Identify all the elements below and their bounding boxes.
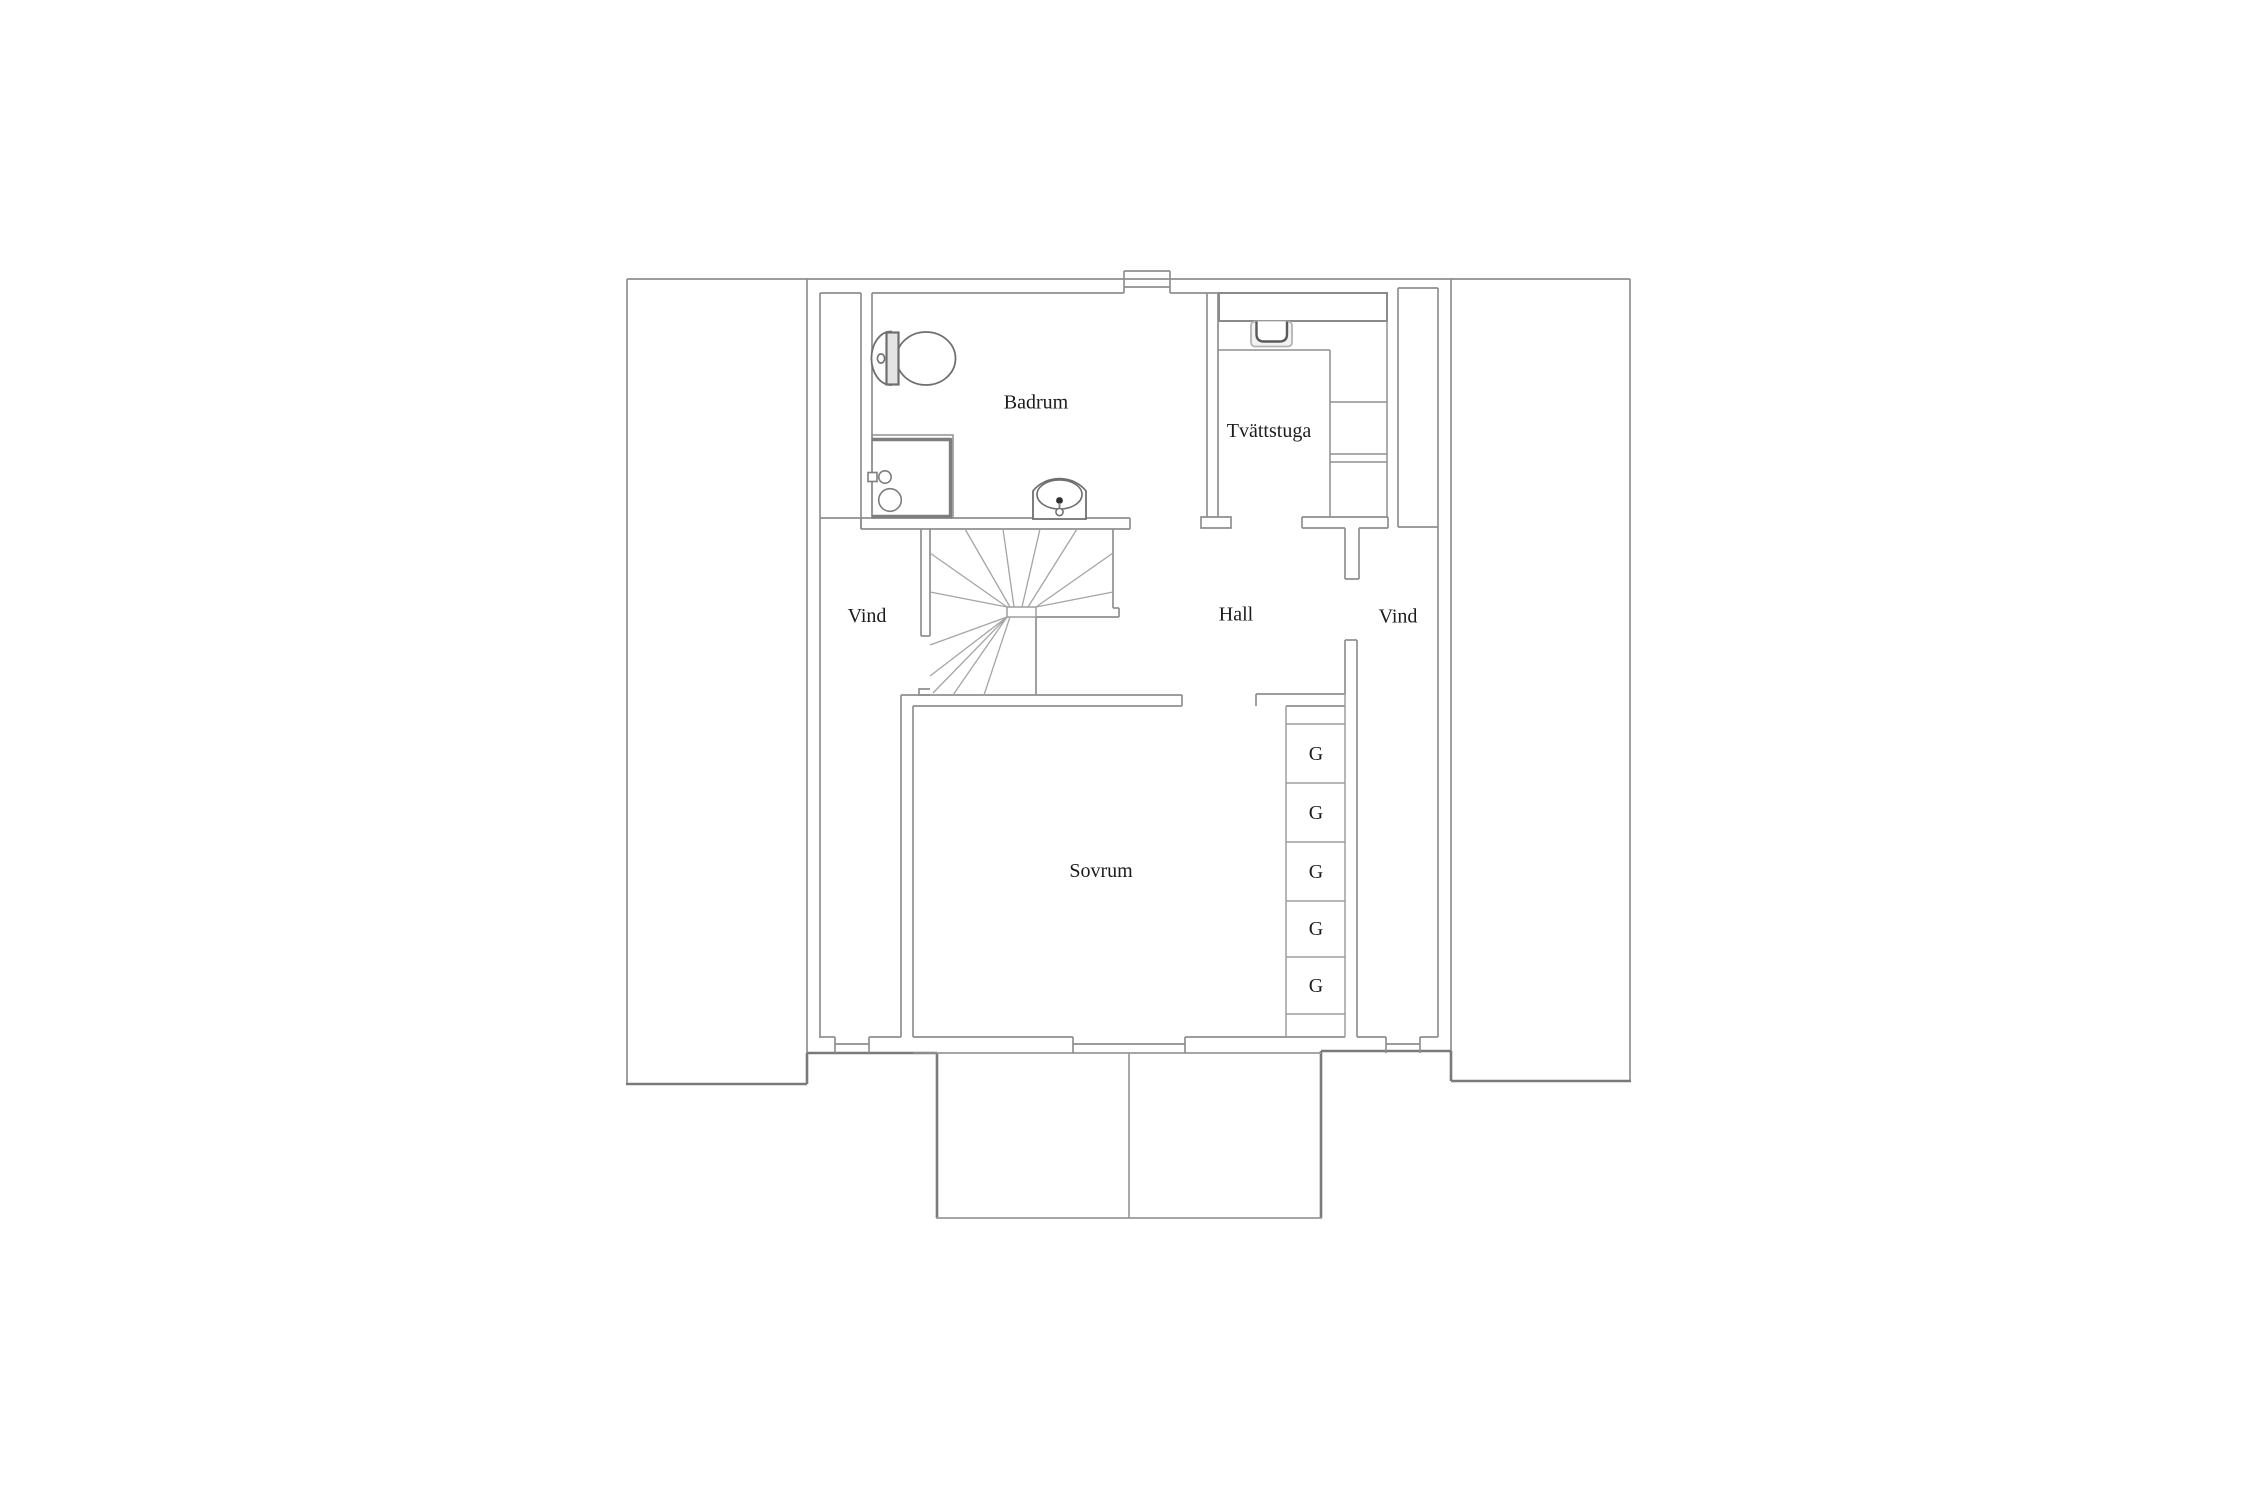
svg-text:G: G bbox=[1309, 861, 1323, 883]
svg-text:G: G bbox=[1309, 743, 1323, 765]
svg-text:Vind: Vind bbox=[1379, 606, 1418, 628]
svg-text:Badrum: Badrum bbox=[1004, 392, 1069, 414]
svg-text:G: G bbox=[1309, 918, 1323, 940]
svg-text:Tvättstuga: Tvättstuga bbox=[1227, 420, 1312, 442]
svg-text:Hall: Hall bbox=[1219, 604, 1254, 626]
svg-text:Sovrum: Sovrum bbox=[1069, 860, 1133, 882]
svg-text:Vind: Vind bbox=[848, 605, 887, 627]
svg-text:G: G bbox=[1309, 802, 1323, 824]
svg-text:G: G bbox=[1309, 975, 1323, 997]
